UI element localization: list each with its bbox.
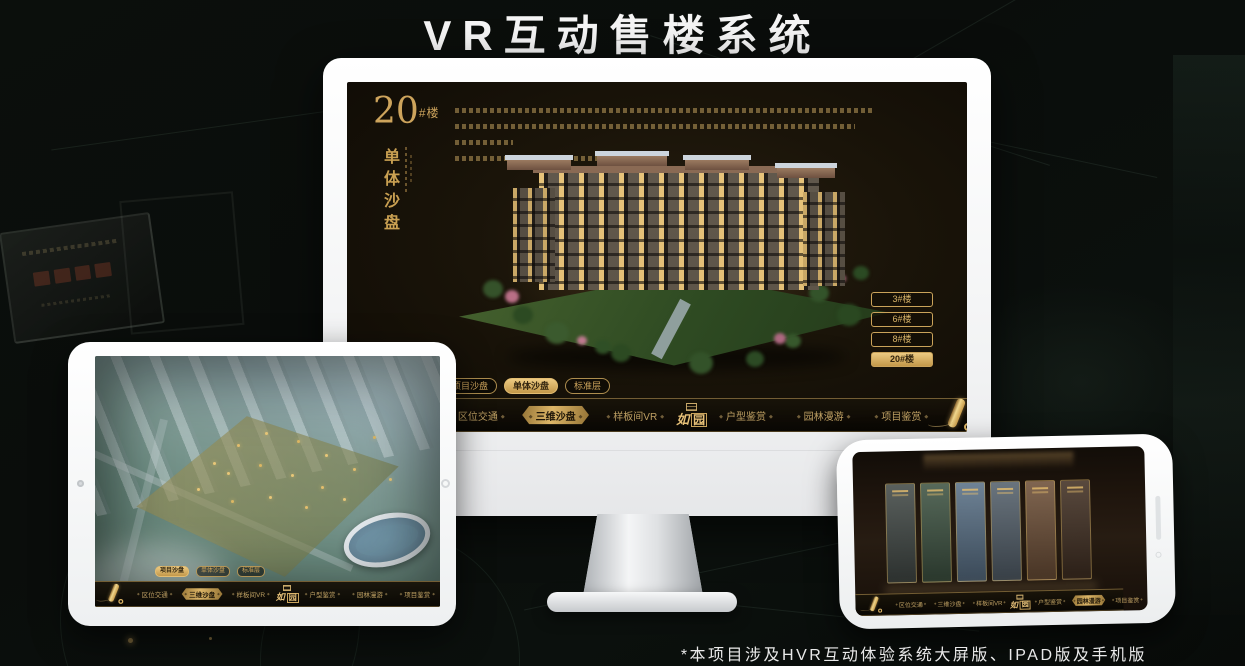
map-poi-dots [128, 638, 133, 643]
building-button-20[interactable]: 20#楼 [871, 352, 933, 367]
model-wing-right [803, 192, 845, 286]
page-title: VR互动售楼系统 [0, 2, 1245, 63]
logo-script-character: 如 [276, 594, 285, 603]
ipad-camera-icon [77, 480, 84, 487]
nav-item-3d-sandbox[interactable]: 三维沙盘 [178, 588, 225, 600]
brand-logo: 如园 [676, 403, 707, 427]
nav-item-project-gallery[interactable]: 项目鉴赏 [394, 588, 440, 600]
scene-panel[interactable] [954, 481, 986, 582]
scene-panel[interactable] [919, 482, 951, 583]
logo-seal-character: 园 [691, 413, 707, 427]
tab-single-sandbox[interactable]: 单体沙盘 [504, 378, 558, 394]
scroll-icon[interactable] [866, 596, 883, 614]
nav-item-floorplan[interactable]: 户型鉴赏 [707, 406, 785, 425]
trees-pink [505, 290, 519, 303]
aerial-project-view[interactable] [95, 356, 440, 607]
block-suffix: #楼 [419, 106, 440, 120]
map-line [51, 111, 328, 151]
model-facade [539, 172, 819, 290]
logo-emblem-icon [1017, 594, 1024, 599]
nav-item-project-gallery[interactable]: 项目鉴赏 [1108, 594, 1147, 606]
scene-panel[interactable] [1059, 479, 1091, 580]
plaque-seal-characters [33, 262, 112, 287]
nav-item-garden-tour[interactable]: 园林漫游 [346, 588, 393, 600]
scroll-icon[interactable] [940, 397, 967, 432]
scene-panel[interactable] [989, 481, 1021, 582]
poster-background: VR互动售楼系统 20#楼 单体沙盘 [0, 0, 1245, 666]
scene-gallery [853, 479, 1123, 585]
model-wing-left [513, 188, 555, 282]
plaque-text-line [22, 239, 118, 256]
block-section-title: 单体沙盘 [377, 148, 401, 236]
background-photo-strip [1173, 55, 1245, 615]
phone-screen: 区位交通 三维沙盘 样板间VR 如园 户型鉴赏 园林漫游 项目鉴赏 [852, 446, 1147, 616]
ipad-home-button[interactable] [441, 479, 450, 488]
logo-script-character: 如 [1010, 601, 1018, 609]
nav-item-location-traffic[interactable]: 区位交通 [131, 588, 178, 600]
tab-project-sandbox[interactable]: 项目沙盘 [155, 566, 189, 577]
scene-panel[interactable] [884, 483, 916, 584]
nav-item-garden-tour[interactable]: 园林漫游 [1069, 594, 1108, 606]
model-roof [507, 160, 571, 170]
model-roof [685, 160, 749, 170]
model-roof [777, 168, 835, 178]
logo-emblem-icon [283, 585, 291, 591]
background-plaque [0, 212, 165, 344]
nav-item-garden-tour[interactable]: 园林漫游 [785, 406, 863, 425]
brand-logo: 如园 [276, 585, 299, 603]
tab-standard-floor[interactable]: 标准层 [565, 378, 610, 394]
ipad-navbar: 区位交通 三维沙盘 样板间VR 如园 户型鉴赏 园林漫游 项目鉴赏 [95, 581, 440, 607]
building-selector: 3#楼 6#楼 8#楼 20#楼 [871, 292, 933, 367]
decorative-vertical-caption [410, 152, 412, 182]
scene-panel[interactable] [1024, 480, 1056, 581]
logo-script-character: 如 [676, 414, 689, 427]
decorative-vertical-caption [405, 144, 407, 192]
nav-item-showroom-vr[interactable]: 样板间VR [969, 596, 1010, 608]
logo-seal-character: 园 [1020, 600, 1031, 609]
model-roof [597, 156, 667, 166]
ipad-sandbox-tabs: 项目沙盘 单体沙盘 标准层 [155, 566, 265, 577]
ceiling-light [923, 452, 1073, 471]
ipad-screen: 项目沙盘 单体沙盘 标准层 区位交通 三维沙盘 样板间VR 如园 户型鉴赏 园林… [95, 356, 440, 607]
vignette [95, 356, 440, 607]
monitor-base [547, 592, 737, 612]
plaque-text-line [41, 294, 111, 307]
phone-navbar: 区位交通 三维沙盘 样板间VR 如园 户型鉴赏 园林漫游 项目鉴赏 [855, 589, 1123, 617]
trees-green [483, 280, 503, 298]
nav-item-showroom-vr[interactable]: 样板间VR [594, 406, 676, 425]
phone-camera-icon [1155, 552, 1161, 558]
building-3d-model[interactable] [447, 148, 907, 388]
nav-item-showroom-vr[interactable]: 样板间VR [226, 588, 276, 600]
nav-item-location-traffic[interactable]: 区位交通 [891, 598, 930, 610]
nav-item-3d-sandbox[interactable]: 三维沙盘 [930, 597, 969, 609]
nav-item-3d-sandbox[interactable]: 三维沙盘 [517, 406, 595, 425]
nav-item-floorplan[interactable]: 户型鉴赏 [1031, 595, 1070, 607]
building-button-8[interactable]: 8#楼 [871, 332, 933, 347]
phone-device: 区位交通 三维沙盘 样板间VR 如园 户型鉴赏 园林漫游 项目鉴赏 [836, 434, 1176, 630]
building-button-6[interactable]: 6#楼 [871, 312, 933, 327]
monitor-stand [583, 514, 703, 596]
brand-logo: 如园 [1010, 594, 1031, 609]
scroll-icon[interactable] [103, 583, 124, 605]
sandbox-tabs: 项目沙盘 单体沙盘 标准层 [443, 378, 610, 394]
block-number: 20#楼 [373, 94, 440, 130]
phone-speaker-pill [1155, 496, 1161, 540]
ipad-device: 项目沙盘 单体沙盘 标准层 区位交通 三维沙盘 样板间VR 如园 户型鉴赏 园林… [68, 342, 456, 626]
nav-item-floorplan[interactable]: 户型鉴赏 [299, 588, 346, 600]
logo-emblem-icon [686, 403, 697, 411]
building-button-3[interactable]: 3#楼 [871, 292, 933, 307]
tab-standard-floor[interactable]: 标准层 [237, 566, 265, 577]
tab-single-sandbox[interactable]: 单体沙盘 [196, 566, 230, 577]
footnote-text: *本项目涉及HVR互动体验系统大屏版、IPAD版及手机版 [681, 641, 1147, 665]
logo-seal-character: 园 [287, 593, 299, 603]
